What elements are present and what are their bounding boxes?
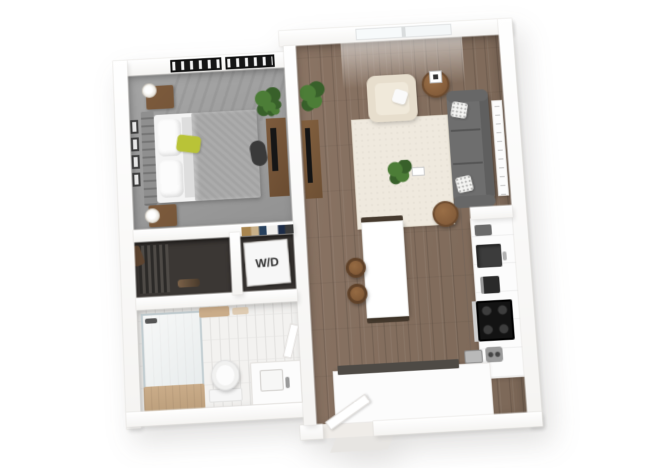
accent-pillow bbox=[176, 134, 202, 153]
throw-pillow bbox=[450, 101, 468, 119]
kitchen-sink bbox=[476, 244, 503, 268]
wall bbox=[470, 205, 513, 219]
small-appliance bbox=[485, 346, 503, 362]
coffee-table-plant bbox=[386, 159, 415, 186]
vanity-sink bbox=[260, 369, 284, 392]
kitchen-faucet bbox=[502, 251, 507, 260]
wall-art-frame bbox=[131, 137, 139, 151]
wall-art-frame bbox=[132, 155, 140, 169]
tub-wood-panel bbox=[144, 384, 206, 412]
apartment-floorplan-3d: W/D bbox=[97, 18, 544, 467]
wall-art-frame bbox=[130, 120, 138, 134]
washer-dryer-label: W/D bbox=[255, 255, 280, 271]
desk-plant bbox=[266, 100, 284, 117]
bedroom-window-blinds-right bbox=[225, 54, 275, 69]
counter-item bbox=[464, 350, 483, 364]
kitchen-island bbox=[362, 221, 408, 317]
closet-floor-items bbox=[178, 278, 200, 287]
wall bbox=[300, 424, 323, 440]
wall-art-frame bbox=[132, 173, 140, 187]
sofa-armrest bbox=[446, 89, 488, 103]
coffee-maker bbox=[480, 276, 500, 294]
shower-head bbox=[145, 318, 157, 324]
bed-pillow bbox=[159, 159, 184, 198]
vanity-faucet bbox=[285, 377, 290, 388]
floorplan-render-canvas: W/D bbox=[0, 0, 650, 468]
stove-range bbox=[476, 299, 515, 341]
washer-dryer-unit: W/D bbox=[243, 239, 291, 287]
framed-photo bbox=[429, 70, 443, 83]
towel-rack bbox=[199, 306, 230, 318]
toaster bbox=[474, 224, 492, 236]
towel bbox=[232, 307, 248, 315]
potted-plant bbox=[299, 81, 326, 115]
hanging-clothes bbox=[138, 244, 170, 294]
